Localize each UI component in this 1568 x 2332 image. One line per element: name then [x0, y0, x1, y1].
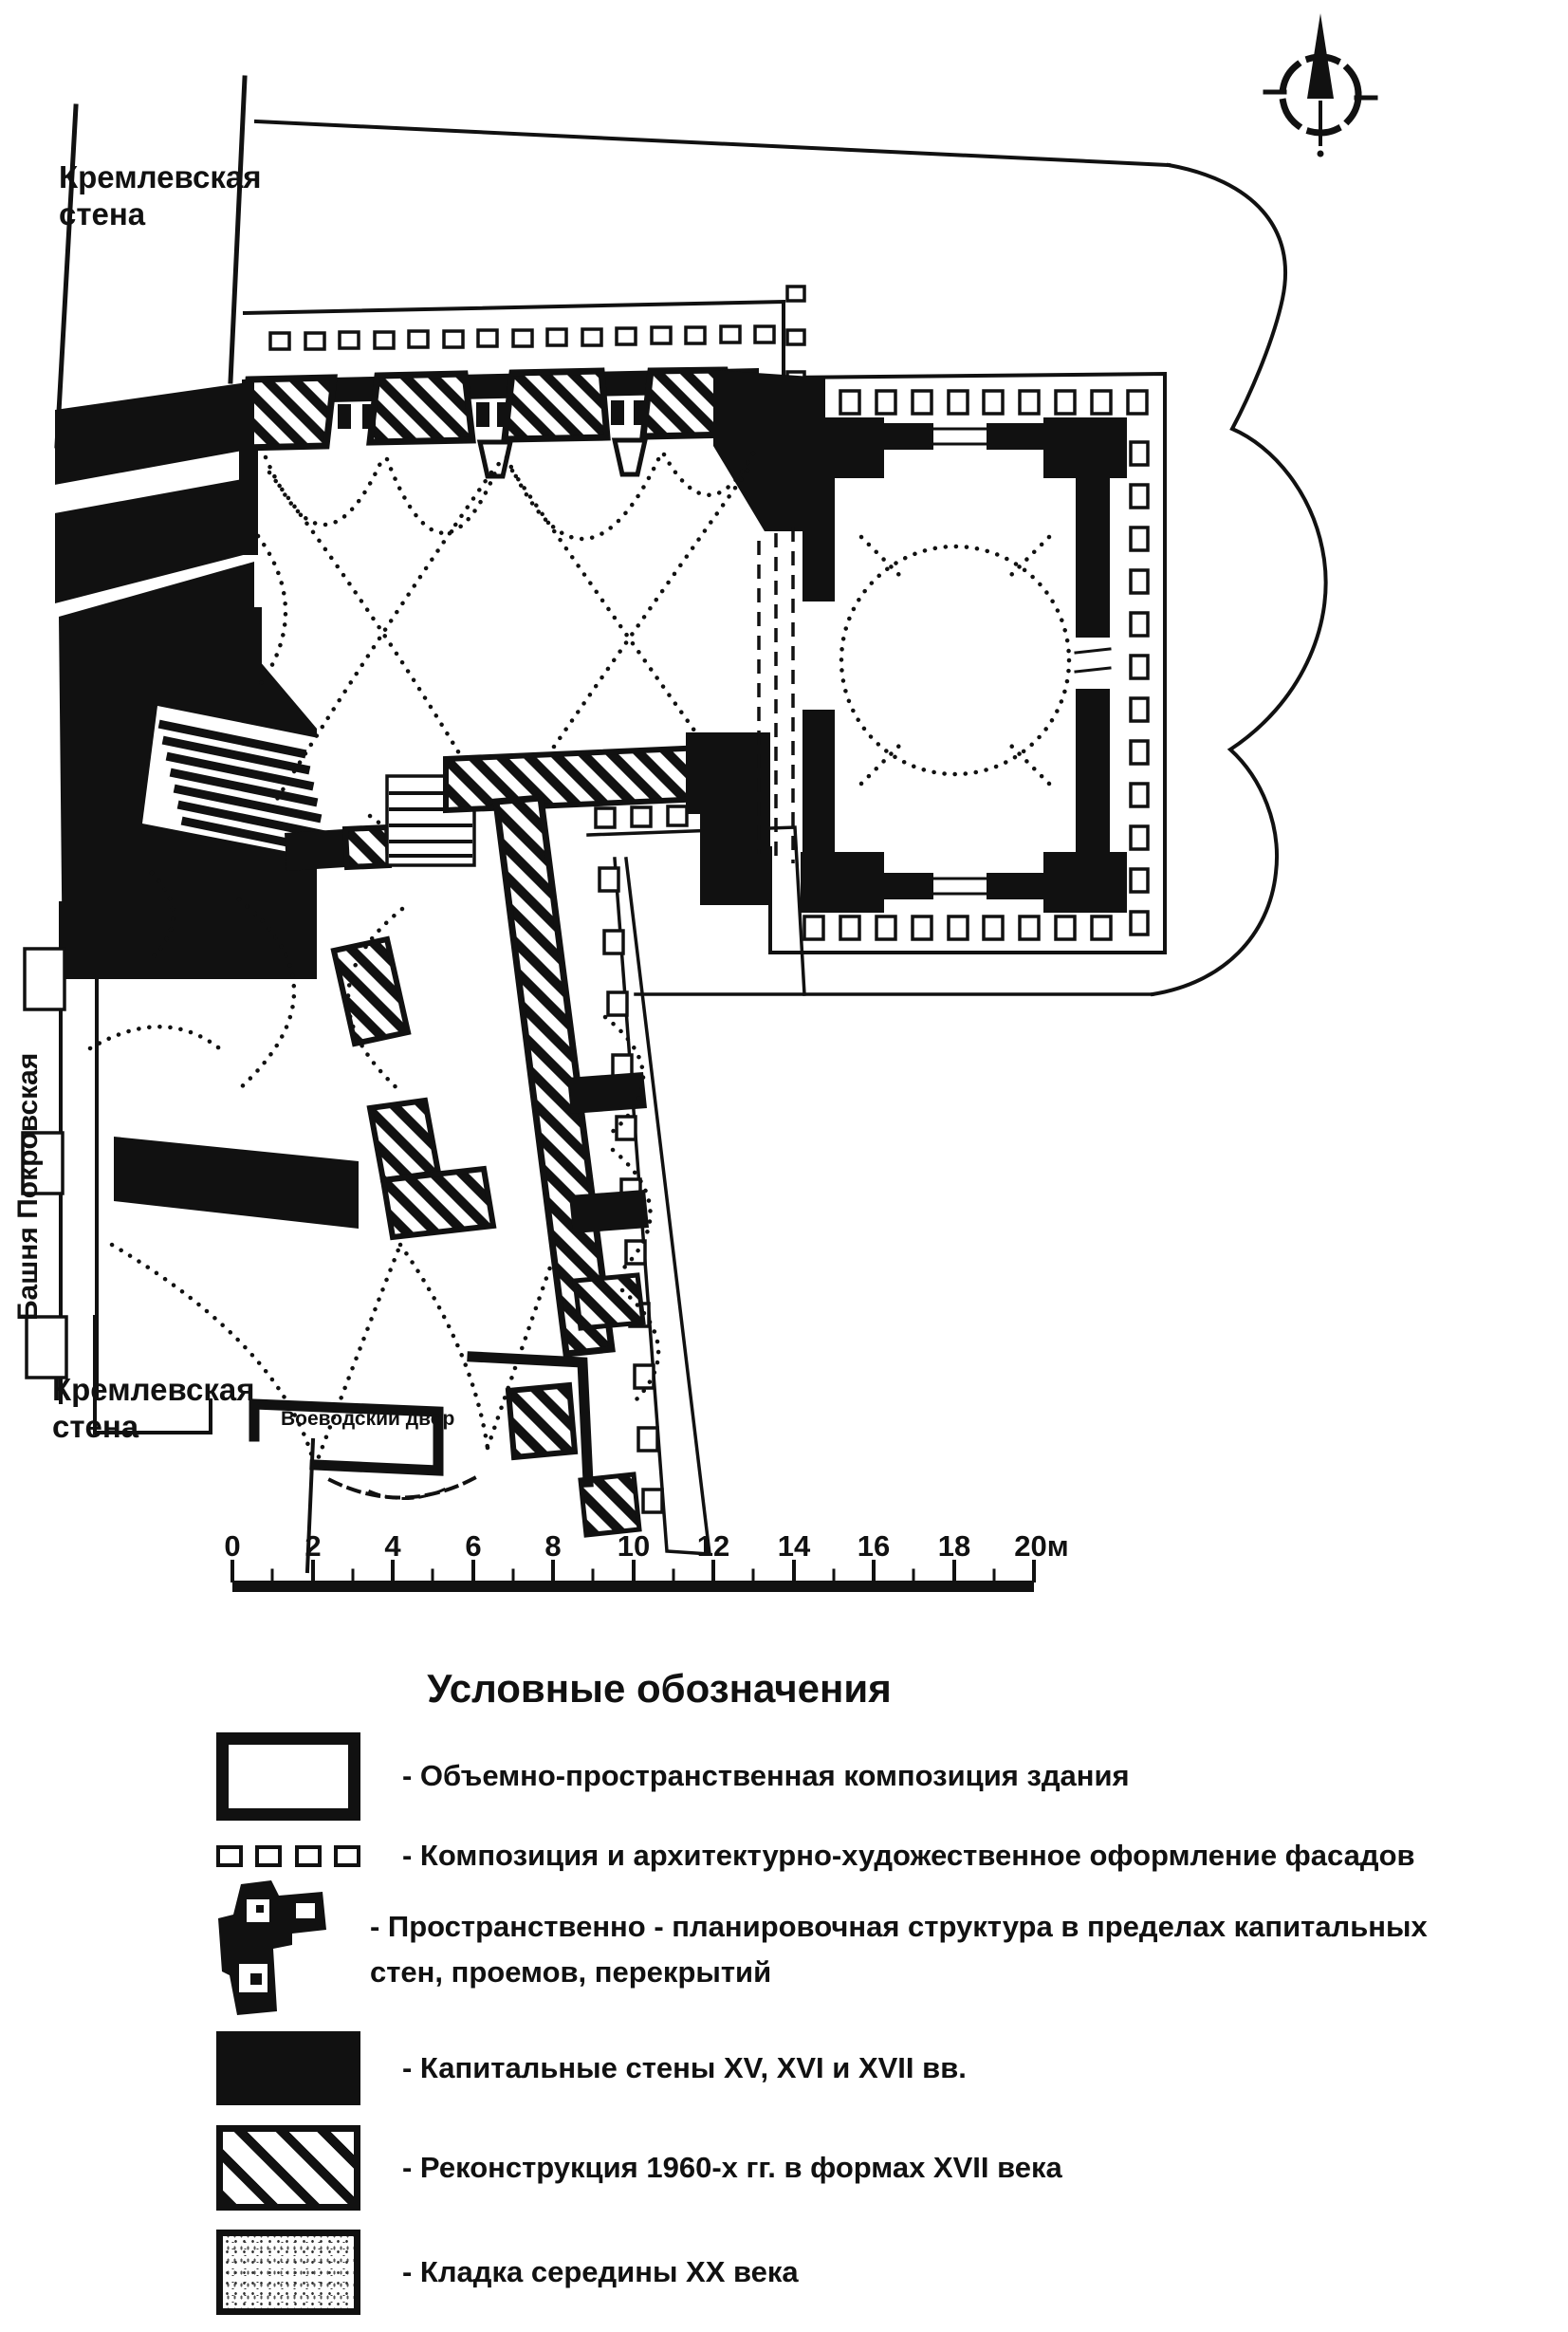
legend-item-label: - Объемно-пространственная композиция зд…	[402, 1753, 1130, 1799]
legend-item-label: - Кладка середины XX века	[402, 2249, 799, 2295]
church-walls	[759, 417, 1127, 913]
legend-item-label: - Композиция и архитектурно-художественн…	[402, 1833, 1415, 1879]
facade-square-icon	[255, 1845, 282, 1867]
legend-item: - Композиция и архитектурно-художественн…	[216, 1835, 1415, 1877]
legend-item-label: - Капитальные стены XV, XVI и XVII вв.	[402, 2045, 967, 2091]
scale-tick-label: 2	[304, 1529, 321, 1563]
scale-tick-label: 20м	[1014, 1529, 1068, 1563]
legend-item-label: - Пространственно - планировочная структ…	[370, 1904, 1461, 1995]
scale-tick-label: 16	[858, 1529, 890, 1563]
legend-item: - Пространственно - планировочная структ…	[216, 1882, 1461, 2017]
kremlin-wall-label-bottom: Кремлевская стена	[52, 1372, 237, 1446]
scale-tick-label: 4	[384, 1529, 401, 1563]
solid-black-swatch-icon	[216, 2031, 360, 2105]
legend-item: - Реконструкция 1960-х гг. в формах XVII…	[216, 2125, 1062, 2211]
facade-square-icon	[295, 1845, 322, 1867]
stipple-swatch-icon	[216, 2230, 360, 2315]
scale-tick-label: 18	[938, 1529, 970, 1563]
scanned-floor-plan-page: .blk{fill:#111;stroke:none} .wht{fill:#f…	[0, 0, 1568, 2332]
scale-bar: 0 2 4 6 8 10 12 14 16 18 20м	[224, 1529, 1068, 1592]
scale-tick-label: 0	[224, 1529, 240, 1563]
facade-squares-swatch-icon	[216, 1845, 360, 1867]
scale-tick-label: 14	[778, 1529, 811, 1563]
legend-item-label: - Реконструкция 1960-х гг. в формах XVII…	[402, 2145, 1062, 2191]
facade-square-icon	[216, 1845, 243, 1867]
plan-fragment-swatch-icon	[216, 1880, 328, 2020]
legend-title: Условные обозначения	[0, 1666, 1319, 1712]
facade-square-icon	[334, 1845, 360, 1867]
scale-tick-label: 6	[465, 1529, 481, 1563]
legend-item: - Капитальные стены XV, XVI и XVII вв.	[216, 2028, 967, 2108]
diagonal-hatch-swatch-icon	[216, 2125, 360, 2211]
courtyard-label: Воеводский двор	[281, 1408, 499, 1432]
outline-rect-swatch-icon	[216, 1732, 360, 1821]
pokrovskaya-tower-label: Башня Покровская	[11, 1036, 45, 1321]
north-arrow-icon	[1265, 13, 1375, 157]
legend-item: - Кладка середины XX века	[216, 2230, 799, 2315]
kremlin-wall-label-top: Кремлевская стена	[59, 159, 244, 233]
scale-tick-label: 12	[697, 1529, 729, 1563]
legend-item: - Объемно-пространственная композиция зд…	[216, 1730, 1130, 1822]
hall-north-wall	[241, 368, 825, 531]
scale-tick-label: 10	[618, 1529, 650, 1563]
scale-tick-label: 8	[544, 1529, 561, 1563]
